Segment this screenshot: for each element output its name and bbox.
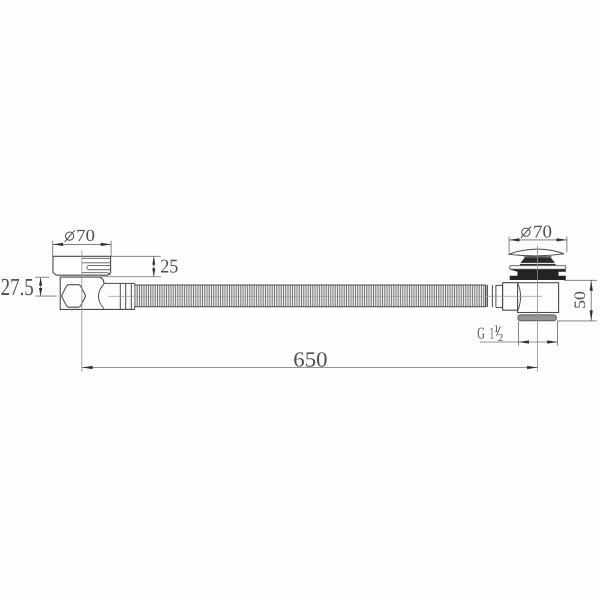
svg-text:50: 50 — [572, 291, 589, 309]
svg-text:70: 70 — [533, 222, 552, 242]
svg-text:G: G — [477, 324, 485, 343]
svg-text:2: 2 — [498, 333, 503, 344]
svg-text:25: 25 — [160, 256, 178, 277]
svg-text:70: 70 — [76, 226, 95, 245]
svg-text:650: 650 — [293, 347, 327, 371]
svg-text:27.5: 27.5 — [1, 274, 34, 301]
